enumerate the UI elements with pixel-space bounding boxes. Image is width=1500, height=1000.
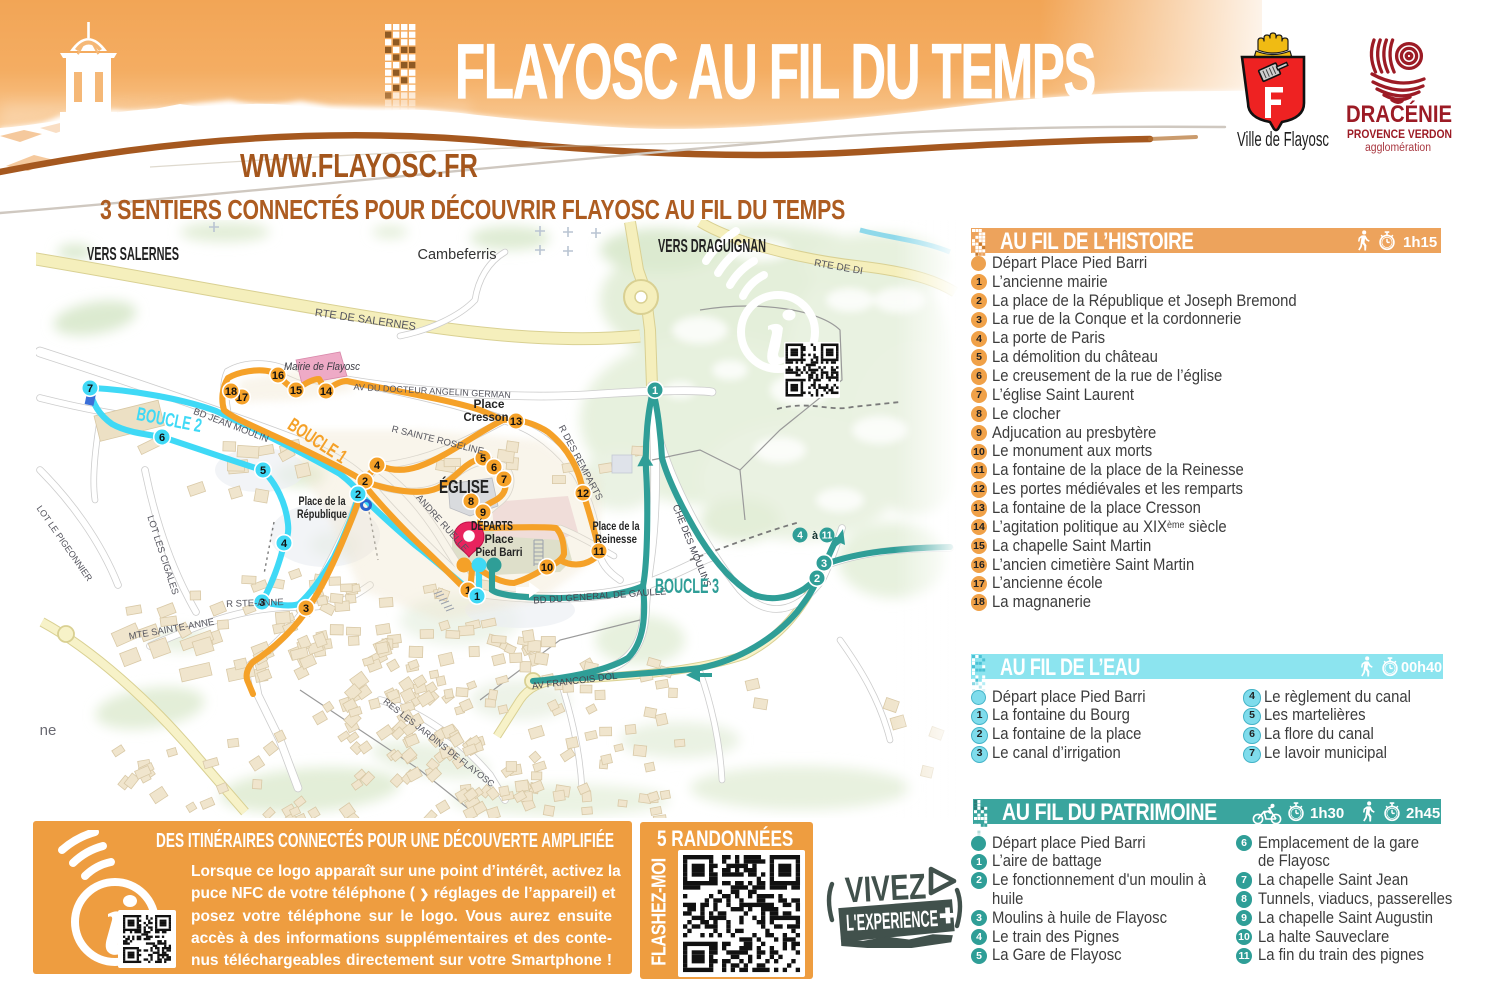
svg-text:L'EXPERIENCE: L'EXPERIENCE [845,905,938,936]
svg-text:4: 4 [281,538,288,550]
svg-text:9: 9 [480,507,486,519]
svg-text:5: 5 [260,465,266,477]
svg-text:VERS SALERNES: VERS SALERNES [87,244,179,264]
svg-text:Cresson: Cresson [464,410,509,424]
svg-text:Ville de Flayosc: Ville de Flayosc [1237,129,1329,151]
svg-text:2: 2 [362,476,368,488]
svg-text:Place de la: Place de la [299,494,346,508]
svg-text:Place de la: Place de la [593,519,640,533]
svg-text:3: 3 [303,603,309,615]
svg-text:14: 14 [320,386,333,398]
svg-text:3: 3 [821,558,827,570]
svg-text:6: 6 [159,432,165,444]
svg-text:Pied Barri: Pied Barri [476,547,523,559]
svg-text:7: 7 [87,383,93,395]
svg-text:12: 12 [577,488,589,500]
svg-text:1: 1 [652,385,658,397]
svg-text:11: 11 [593,546,605,558]
svg-text:1: 1 [474,591,480,603]
svg-text:Place: Place [485,534,514,546]
svg-text:7: 7 [501,474,507,486]
svg-text:6: 6 [491,462,497,474]
svg-text:2: 2 [814,573,820,585]
svg-text:République: République [297,507,347,521]
svg-text:Place: Place [474,397,505,411]
svg-text:DRACÉNIE: DRACÉNIE [1346,100,1452,128]
svg-text:BOUCLE 3: BOUCLE 3 [655,575,719,598]
svg-text:PROVENCE VERDON: PROVENCE VERDON [1347,128,1452,141]
svg-text:Mairie de Flayosc: Mairie de Flayosc [284,361,360,373]
svg-text:4: 4 [797,531,803,542]
svg-text:13: 13 [510,416,522,428]
svg-text:2: 2 [355,489,361,501]
svg-text:à: à [812,530,819,542]
svg-text:18: 18 [225,386,237,398]
svg-text:ne: ne [40,722,57,739]
svg-text:8: 8 [468,496,474,508]
svg-text:Cambeferris: Cambeferris [418,247,497,263]
svg-text:R STE-ANNE: R STE-ANNE [226,597,284,610]
svg-text:4: 4 [374,460,381,472]
svg-text:15: 15 [290,385,302,397]
svg-text:11: 11 [822,531,833,542]
svg-text:agglomération: agglomération [1365,142,1431,154]
svg-text:DÉPARTS: DÉPARTS [471,518,513,533]
svg-text:16: 16 [272,370,284,382]
svg-text:10: 10 [541,562,553,574]
svg-text:VERS DRAGUIGNAN: VERS DRAGUIGNAN [658,236,766,256]
svg-text:ÉGLISE: ÉGLISE [439,476,489,497]
svg-text:Reinesse: Reinesse [595,532,637,546]
